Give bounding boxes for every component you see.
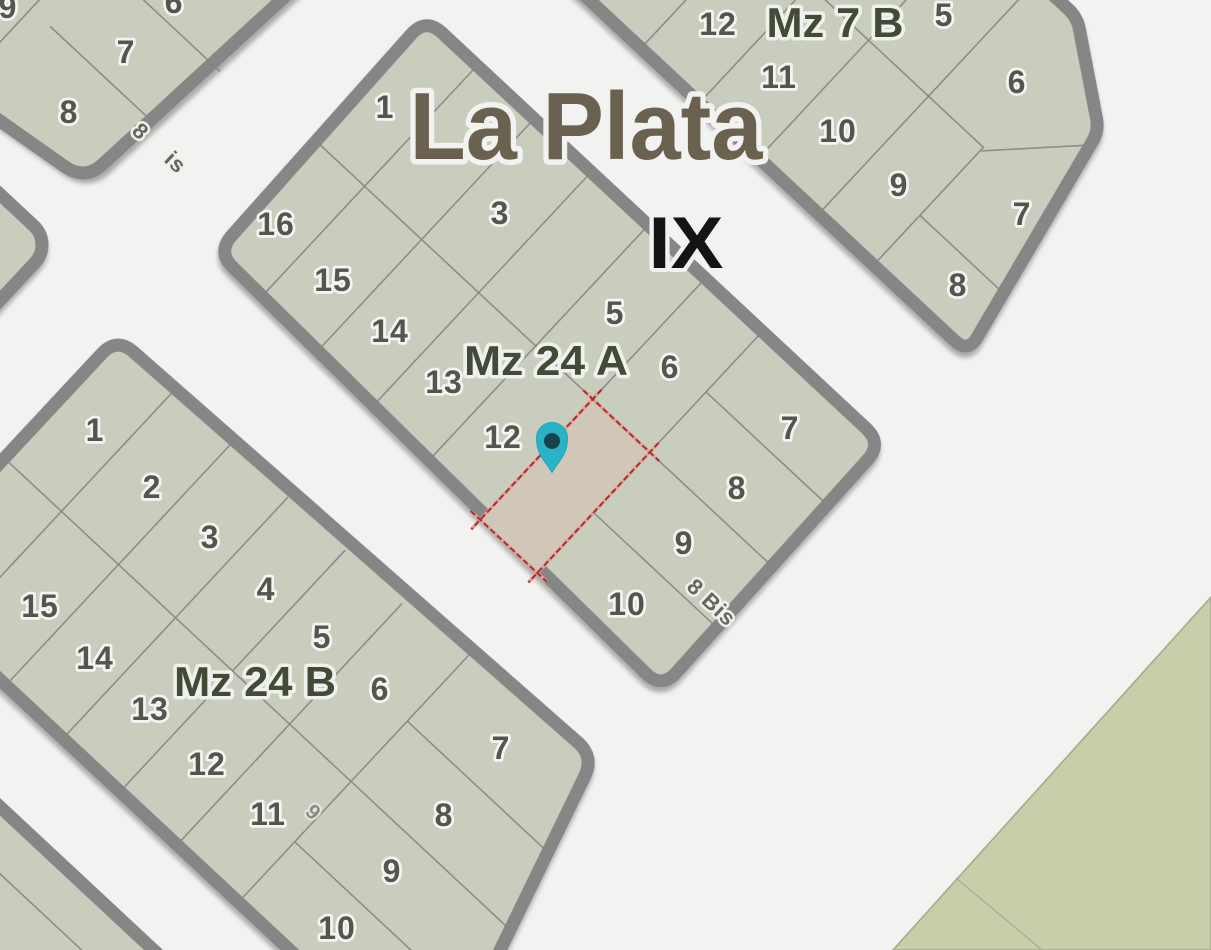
svg-text:6: 6 <box>1008 64 1027 100</box>
svg-text:8: 8 <box>728 470 747 506</box>
svg-text:11: 11 <box>761 59 797 95</box>
svg-text:La Plata: La Plata <box>410 73 764 180</box>
svg-text:14: 14 <box>76 640 114 676</box>
svg-text:9: 9 <box>0 0 17 25</box>
svg-text:6: 6 <box>165 0 184 20</box>
svg-text:16: 16 <box>257 206 295 242</box>
svg-text:5: 5 <box>606 295 625 331</box>
svg-text:15: 15 <box>314 262 352 298</box>
svg-text:Mz 24 A: Mz 24 A <box>464 337 628 384</box>
svg-text:1: 1 <box>86 412 105 448</box>
svg-text:IX: IX <box>649 203 724 284</box>
svg-text:9: 9 <box>383 853 402 889</box>
svg-text:8: 8 <box>435 797 454 833</box>
svg-text:5: 5 <box>935 0 954 33</box>
svg-text:6: 6 <box>371 671 390 707</box>
svg-text:9: 9 <box>890 167 909 203</box>
svg-text:4: 4 <box>257 571 276 607</box>
svg-text:13: 13 <box>131 691 169 727</box>
svg-text:7: 7 <box>781 410 800 446</box>
svg-text:2: 2 <box>143 469 162 505</box>
svg-text:10: 10 <box>819 113 857 149</box>
svg-text:3: 3 <box>201 519 220 555</box>
svg-text:11: 11 <box>250 796 286 832</box>
svg-text:3: 3 <box>491 195 510 231</box>
svg-text:10: 10 <box>318 910 356 946</box>
svg-text:13: 13 <box>425 364 463 400</box>
svg-text:5: 5 <box>313 619 332 655</box>
svg-text:10: 10 <box>608 586 646 622</box>
svg-text:8: 8 <box>60 94 79 130</box>
svg-text:1: 1 <box>376 89 395 125</box>
svg-text:8: 8 <box>949 267 968 303</box>
svg-text:15: 15 <box>21 588 59 624</box>
svg-text:Mz 24 B: Mz 24 B <box>174 658 336 705</box>
svg-text:12: 12 <box>699 6 737 42</box>
svg-text:12: 12 <box>484 419 522 455</box>
svg-text:9: 9 <box>675 525 694 561</box>
svg-text:14: 14 <box>371 313 409 349</box>
svg-text:7: 7 <box>1013 196 1032 232</box>
svg-text:7: 7 <box>117 34 136 70</box>
svg-text:7: 7 <box>492 730 511 766</box>
svg-text:12: 12 <box>188 746 226 782</box>
svg-text:Mz 7 B: Mz 7 B <box>767 0 904 46</box>
svg-text:6: 6 <box>661 349 680 385</box>
